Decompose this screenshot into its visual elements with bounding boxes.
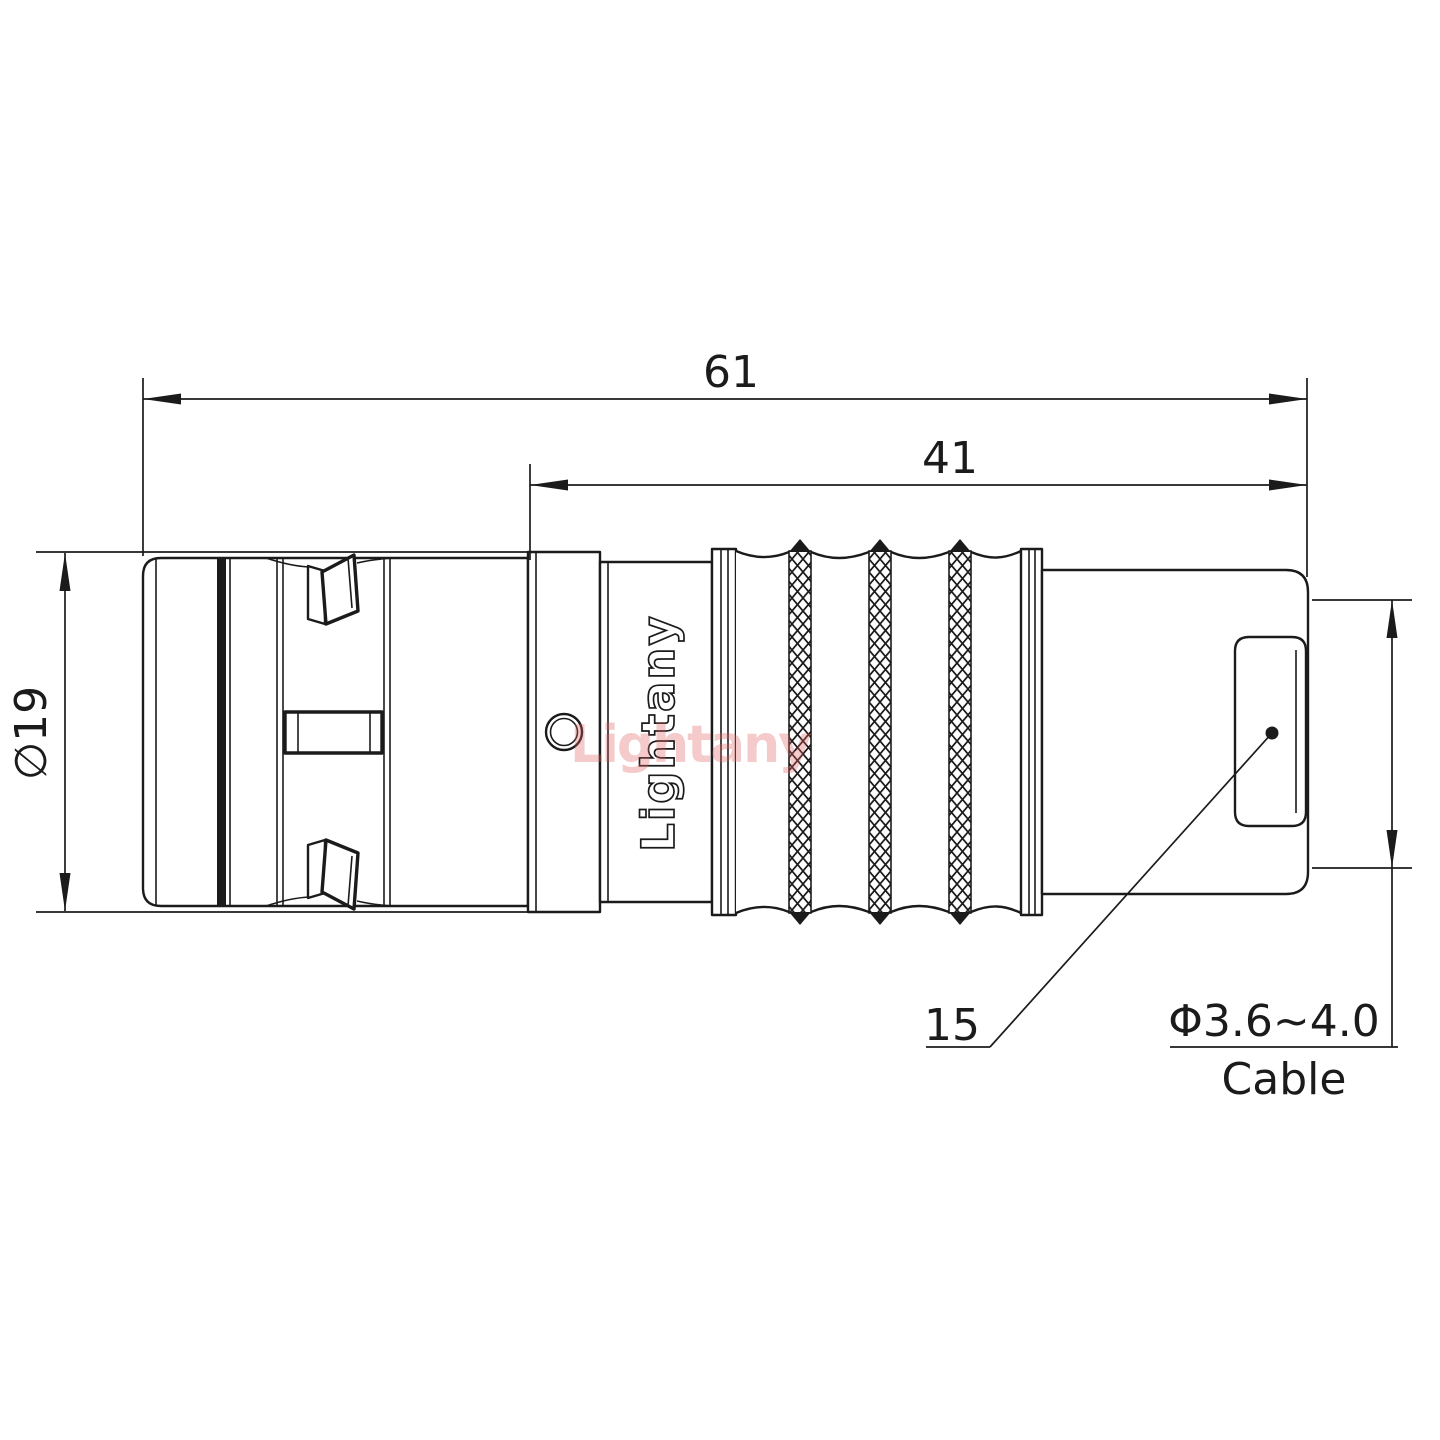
knurl-band — [949, 539, 971, 925]
watermark-text: Lightany — [570, 715, 811, 775]
connector-technical-drawing: Lightany — [0, 0, 1440, 1440]
dim-61-label: 61 — [703, 347, 759, 398]
locking-band — [217, 558, 226, 906]
cable-label: Cable — [1222, 1054, 1347, 1105]
dimension-rear-length: 41 — [530, 433, 1307, 560]
technical-drawing-page: Lightany — [0, 0, 1440, 1440]
front-shell — [143, 555, 528, 909]
knurl-flange-right — [1021, 549, 1042, 915]
cable-boot — [1042, 570, 1308, 894]
latch-window — [285, 712, 382, 753]
dimension-overall-length: 61 — [143, 347, 1307, 577]
cable-range-label: Φ3.6~4.0 — [1168, 996, 1379, 1047]
dim-dia19-label: ∅19 — [6, 686, 57, 780]
boot-ref-label: 15 — [924, 1000, 980, 1051]
knurl-band — [869, 539, 891, 925]
dim-41-label: 41 — [922, 433, 978, 484]
